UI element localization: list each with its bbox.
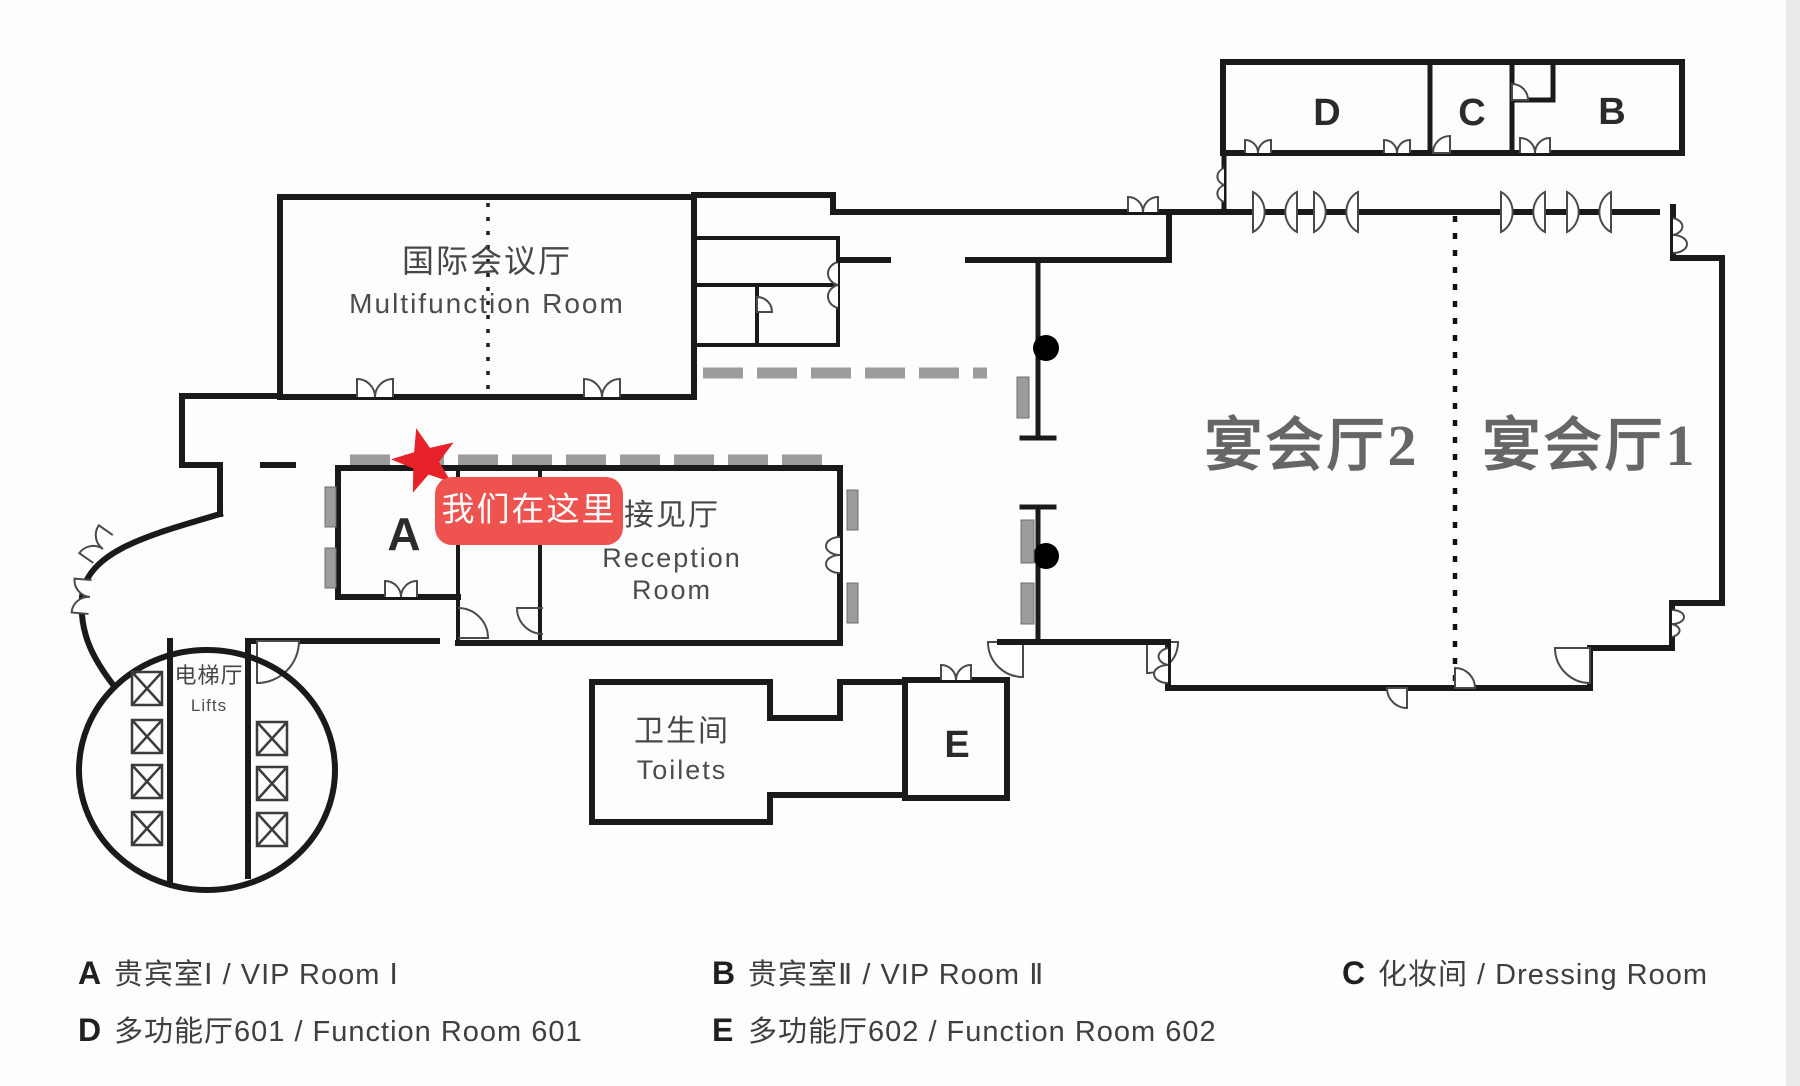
door-swing-icon	[757, 297, 772, 312]
wall-opening-marker	[325, 548, 336, 588]
legend-letter: B	[712, 955, 735, 991]
legend-desc: 多功能厅601 / Function Room 601	[114, 1015, 583, 1048]
banquet-halls: 宴会厅2 宴会厅1	[1000, 192, 1722, 708]
legend-desc: 贵宾室Ⅰ / VIP Room Ⅰ	[114, 958, 399, 991]
reception-label-en1: Reception	[602, 543, 742, 573]
door-swing-icon	[1555, 648, 1590, 683]
double-door-icon	[1672, 610, 1684, 637]
door-swing-icon	[1387, 688, 1407, 708]
wall-opening-marker	[1021, 520, 1034, 563]
legend: A 贵宾室Ⅰ / VIP Room Ⅰ B 贵宾室Ⅱ / VIP Room Ⅱ …	[78, 955, 1708, 1048]
legend-letter: A	[78, 955, 101, 991]
dcb-block: D C B	[1217, 62, 1682, 212]
legend-desc: 多功能厅602 / Function Room 602	[748, 1015, 1217, 1048]
toilets-label-en: Toilets	[637, 755, 728, 785]
legend-letter: C	[1342, 955, 1365, 991]
floor-plan-page: 国际会议厅 Multifunction Room 电梯厅 Lifts	[0, 0, 1800, 1086]
page-edge-shade	[1786, 0, 1800, 1086]
room-d-letter: D	[1313, 92, 1340, 134]
service-rooms	[694, 238, 838, 345]
room-c-letter: C	[1458, 92, 1485, 134]
wall-opening-marker	[325, 487, 336, 527]
double-door-icon	[1673, 218, 1687, 253]
dcb-inner-walls	[1224, 62, 1553, 212]
legend-letter: D	[78, 1012, 101, 1048]
double-door-icon	[826, 537, 840, 573]
lift-lobby: 电梯厅 Lifts	[72, 525, 335, 890]
multifunction-room-label-zh: 国际会议厅	[402, 243, 572, 279]
door-swing-icon	[1433, 136, 1450, 153]
toilets-outline	[592, 682, 905, 822]
lifts-label-zh: 电梯厅	[174, 663, 243, 688]
room-b-letter: B	[1598, 91, 1625, 133]
door-swing-icon	[1455, 668, 1475, 688]
corridor-band	[694, 195, 1169, 260]
here-badge-label: 我们在这里	[442, 491, 617, 528]
reception-label-en2: Room	[632, 575, 712, 605]
room-e-letter: E	[944, 724, 969, 766]
double-door-icon	[1128, 197, 1158, 212]
legend-letter: E	[712, 1012, 733, 1048]
door-swing-icon	[458, 608, 488, 638]
wall-opening-marker	[1017, 377, 1029, 418]
toilets: 卫生间 Toilets	[592, 682, 905, 822]
room-a-letter: A	[387, 508, 420, 560]
double-door-icon	[1245, 140, 1271, 153]
door-swing-icon	[1512, 84, 1528, 100]
corridor-walls	[694, 195, 1169, 260]
wall-opening-marker	[847, 490, 858, 530]
hallway-walls	[82, 396, 437, 686]
double-door-icon	[1217, 168, 1224, 202]
column-icon	[1033, 335, 1059, 361]
banquet-hall-2-label: 宴会厅2	[1204, 413, 1419, 478]
foyer-columns	[988, 262, 1178, 677]
multifunction-room: 国际会议厅 Multifunction Room	[280, 197, 694, 397]
service-room-walls	[694, 238, 838, 345]
reception-label-zh: 接见厅	[624, 499, 720, 532]
multifunction-room-label-en: Multifunction Room	[349, 288, 625, 319]
double-door-icon	[1384, 140, 1410, 153]
double-door-icon	[385, 581, 417, 597]
wall-opening-marker	[847, 583, 858, 623]
legend-desc: 化妆间 / Dressing Room	[1378, 958, 1708, 991]
floor-plan-canvas: 国际会议厅 Multifunction Room 电梯厅 Lifts	[0, 0, 1800, 1086]
double-door-icon	[1520, 138, 1550, 153]
wall-opening-marker	[1021, 583, 1034, 624]
room-e: E	[905, 665, 1007, 798]
lifts-label-en: Lifts	[191, 696, 227, 715]
double-door-icon	[357, 379, 393, 397]
double-door-icon	[941, 665, 971, 680]
door-swing-icon	[988, 642, 1023, 677]
here-marker: 我们在这里	[391, 428, 623, 545]
legend-desc: 贵宾室Ⅱ / VIP Room Ⅱ	[748, 958, 1044, 991]
column-icon	[1033, 543, 1059, 569]
double-door-icon	[584, 379, 620, 397]
toilets-label-zh: 卫生间	[634, 715, 730, 748]
banquet-hall-1-label: 宴会厅1	[1482, 413, 1697, 478]
